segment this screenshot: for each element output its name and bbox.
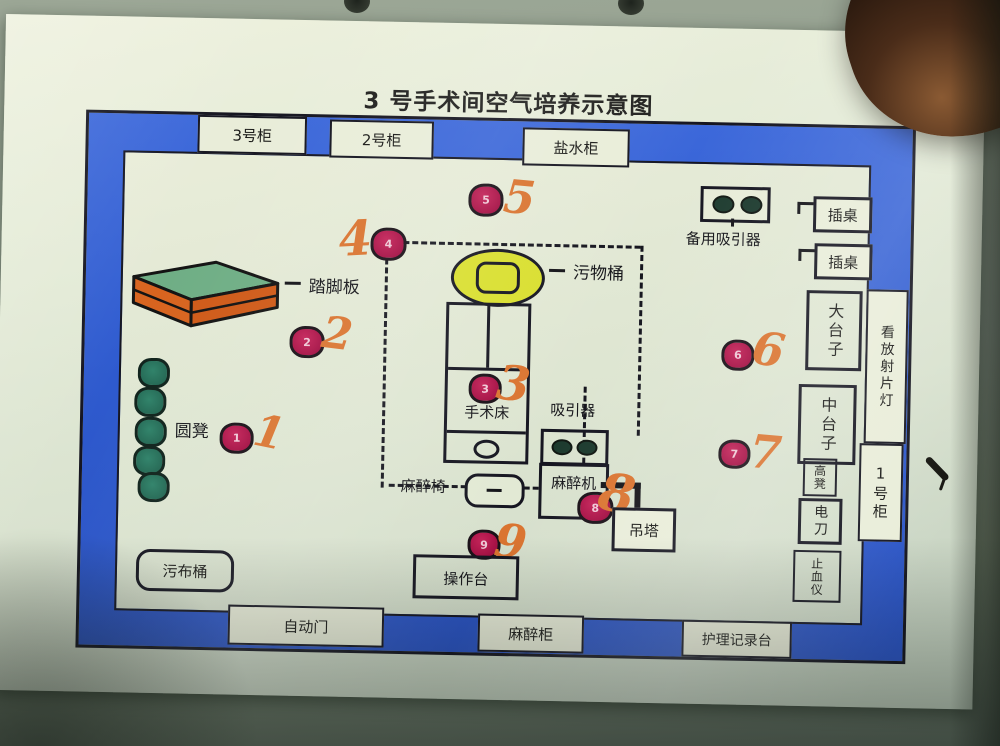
mid-table-label: 中台子 (814, 396, 839, 453)
step-board-drawing (127, 254, 286, 329)
cabinet-1-box: 1号柜 (858, 443, 904, 542)
electro-knife-label: 电刀 (810, 504, 831, 538)
cabinet-1-label: 1号柜 (870, 464, 892, 521)
sample-dot-5: 5 (468, 183, 504, 217)
big-table-box: 大台子 (805, 290, 863, 371)
saline-cabinet-box: 盐水柜 (522, 127, 630, 167)
xray-light-box: 看放射片灯 (864, 289, 909, 444)
dirty-cloth-bucket-box: 污布桶 (136, 549, 235, 593)
console-box: 操作台 (412, 554, 519, 600)
cabinet-3-label: 3号柜 (232, 124, 272, 146)
suction-label: 吸引器 (550, 399, 595, 421)
console-label: 操作台 (416, 567, 516, 590)
dot-1-number: 1 (233, 432, 241, 445)
waste-bucket-label: 污物桶 (573, 258, 624, 284)
dot-3-number: 3 (481, 382, 489, 395)
diagram-sheet: 3 号手术间空气培养示意图 3号柜 2号柜 盐水柜 自动门 麻醉柜 护理记录台 … (0, 14, 986, 710)
sample-dot-1: 1 (219, 422, 254, 454)
anesthesia-cabinet-label: 麻醉柜 (508, 623, 553, 645)
dot-2-number: 2 (303, 335, 311, 348)
table-divider (447, 430, 526, 435)
auto-door-box: 自动门 (227, 605, 384, 648)
plug-table-2-label: 插桌 (828, 251, 858, 273)
handwritten-7: 7 (747, 428, 783, 477)
saline-cabinet-label: 盐水柜 (553, 136, 598, 158)
hemostasis-box: 止血仪 (792, 550, 841, 603)
dot-5-number: 5 (482, 194, 490, 207)
anesthesia-chair-icon (464, 473, 525, 508)
binder-hole-left (344, 0, 370, 13)
plug-table-box-2: 插桌 (814, 243, 873, 280)
round-stool-icon (138, 358, 171, 389)
dot-9-number: 9 (480, 538, 488, 551)
high-stool-box: 高凳 (803, 458, 838, 497)
cabinet-2-label: 2号柜 (362, 129, 402, 151)
cabinet-3-box: 3号柜 (197, 115, 307, 155)
pen-arrow-mark (915, 450, 960, 495)
photo-of-diagram: 3 号手术间空气培养示意图 3号柜 2号柜 盐水柜 自动门 麻醉柜 护理记录台 … (0, 0, 1000, 746)
anesthesia-machine-label: 麻醉机 (542, 472, 606, 494)
leader-line (285, 282, 301, 285)
suction-port-icon (576, 440, 597, 456)
handwritten-2: 2 (319, 311, 355, 358)
high-stool-label: 高凳 (811, 464, 829, 490)
suction-port-icon (712, 195, 734, 213)
sample-dot-4: 4 (370, 227, 407, 261)
dot-6-number: 6 (734, 349, 742, 362)
leader-line (549, 269, 565, 272)
mid-table-box: 中台子 (797, 384, 857, 465)
xray-light-label: 看放射片灯 (875, 324, 897, 409)
auto-door-label: 自动门 (283, 615, 328, 637)
hemostasis-label: 止血仪 (808, 557, 826, 596)
anesthesia-cabinet-box: 麻醉柜 (477, 614, 584, 654)
pendant-tower-box: 吊塔 (611, 507, 676, 552)
suction-port-icon (551, 439, 572, 455)
plug-table-1-label: 插桌 (828, 204, 858, 226)
leader-line (731, 219, 734, 227)
pendant-tower-label: 吊塔 (629, 519, 659, 541)
cabinet-2-box: 2号柜 (329, 119, 434, 159)
nursing-desk-box: 护理记录台 (681, 620, 792, 659)
handwritten-5: 5 (502, 173, 538, 222)
nursing-desk-label: 护理记录台 (702, 629, 772, 650)
handwritten-4: 4 (337, 214, 373, 264)
round-stool-icon (134, 387, 167, 418)
suction-box (540, 429, 609, 466)
plug-table-box-1: 插桌 (813, 196, 873, 233)
round-stool-label: 圆凳 (175, 416, 209, 442)
sample-dot-7: 7 (718, 439, 751, 469)
dot-7-number: 7 (730, 448, 738, 461)
table-divider (486, 306, 490, 368)
backup-suction-label: 备用吸引器 (686, 228, 761, 251)
anesthesia-chair-label: 麻醉椅 (401, 475, 446, 497)
chair-inner-dash (487, 489, 502, 492)
handwritten-3: 3 (494, 358, 533, 410)
step-board-label: 踏脚板 (308, 272, 359, 298)
round-stool-icon (137, 472, 170, 503)
round-stool-icon (134, 417, 167, 448)
waste-bucket-inner (476, 261, 521, 294)
dirty-cloth-bucket-label: 污布桶 (162, 560, 207, 582)
table-foot-oval (473, 439, 499, 459)
dot-4-number: 4 (385, 238, 393, 251)
big-table-label: 大台子 (821, 302, 846, 359)
electro-knife-box: 电刀 (798, 498, 843, 545)
binder-hole-right (618, 0, 644, 15)
backup-suction-box (700, 186, 771, 223)
suction-port-icon (740, 196, 762, 214)
